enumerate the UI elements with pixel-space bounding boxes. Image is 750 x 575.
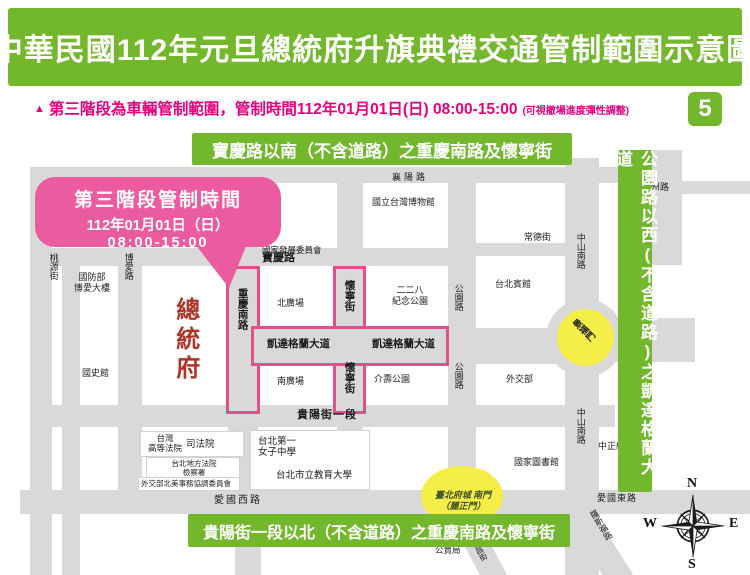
place-jieshou-park: 介壽公園 (374, 374, 410, 385)
page-number-badge: 5 (688, 92, 722, 126)
road-gongyuan (448, 167, 476, 514)
street-aiguo-west: 愛國西路 (214, 495, 262, 507)
compass-north-label: N (687, 476, 697, 492)
callout-date: 112年01月01日（日） (35, 214, 281, 235)
road-stub-taoyuan (62, 514, 80, 575)
banner-north-boundary: 寶慶路以南（不含道路）之重慶南路及懷寧街 (192, 133, 572, 165)
street-gongyuan-south: 公園路 (453, 362, 464, 389)
street-boai: 博愛路 (123, 253, 134, 280)
street-xiangyang: 襄陽路 (392, 172, 428, 183)
compass-south-label: S (688, 557, 696, 573)
place-mofa: 外交部 (506, 374, 533, 385)
banner-east-boundary: 公園路以西(不含道路)之凱達格蘭大道 (618, 150, 652, 492)
place-taiwan-museum: 國立台灣博物館 (372, 197, 435, 208)
place-north-plaza: 北廣場 (277, 298, 304, 309)
street-gongyuan-north: 公園路 (453, 284, 464, 311)
traffic-control-map-page: 中華民國112年元旦總統府升旗典禮交通管制範圍示意圖 ▲ 第三階段為車輛管制範圍… (0, 0, 750, 575)
place-mnd-building: 國防部 博愛大樓 (66, 272, 118, 294)
place-education-university: 台北市立教育大學 (276, 471, 352, 482)
place-judicial-yuan: 司法院 (186, 439, 215, 450)
street-ketagalan-east: 凱達格蘭大道 (372, 338, 435, 351)
compass-west-label: W (643, 516, 657, 532)
notice-text: 第三階段為車輛管制範圍，管制時間112年01月01日(日) 08:00-15:0… (49, 97, 518, 119)
place-district-court: 台北地方法院 檢察署 (163, 459, 225, 477)
street-taoyuan: 桃源街 (48, 253, 59, 280)
stage3-time-callout: 第三階段管制時間 112年01月01日（日） 08:00-15:00 (35, 177, 281, 247)
place-first-girls-high: 台北第一 女子中學 (258, 437, 296, 460)
stage3-notice: ▲ 第三階段為車輛管制範圍，管制時間112年01月01日(日) 08:00-15… (34, 97, 629, 119)
street-changde: 常德街 (524, 232, 551, 243)
street-aiguo-east: 愛國東路 (597, 493, 637, 504)
compass-rose-icon (659, 492, 727, 560)
place-academia-historica: 國史館 (82, 368, 109, 379)
place-high-court: 台灣 高等法院 (143, 433, 187, 453)
place-presidential-office: 總統府 (170, 297, 199, 384)
road-changde (476, 243, 568, 256)
south-gate-label: 臺北府城 南門 （麗正門） (420, 490, 506, 512)
street-zhongshan-north: 中山南路 (575, 233, 586, 269)
street-huaining-south: 懷寧街 (343, 362, 356, 394)
place-naccc: 外交部北美事務協調委員會 (141, 479, 231, 488)
street-guiyang: 貴陽街一段 (297, 409, 357, 422)
callout-time: 08:00-15:00 (35, 235, 281, 251)
title-banner: 中華民國112年元旦總統府升旗典禮交通管制範圍示意圖 (8, 8, 742, 86)
street-ketagalan-west: 凱達格蘭大道 (267, 338, 330, 351)
callout-title: 第三階段管制時間 (35, 185, 281, 212)
notice-note: (可視撤場進度彈性調整) (522, 102, 629, 117)
page-title: 中華民國112年元旦總統府升旗典禮交通管制範圍示意圖 (0, 25, 750, 69)
place-228-park: 二二八 紀念公園 (387, 285, 433, 307)
road-stub-west (30, 514, 52, 575)
street-huaining-north: 懷寧街 (343, 280, 356, 312)
street-chongqing: 重慶南路 (236, 288, 249, 330)
banner-south-boundary: 貴陽街一段以北（不含道路）之重慶南路及懷寧街 (188, 514, 570, 547)
street-zhongshan-south: 中山南路 (575, 408, 586, 444)
triangle-marker-icon: ▲ (34, 103, 45, 115)
place-national-library: 國家圖書館 (514, 457, 559, 468)
place-taipei-guest-house: 台北賓館 (495, 279, 531, 290)
compass-east-label: E (729, 516, 738, 532)
place-south-plaza: 南廣場 (277, 376, 304, 387)
